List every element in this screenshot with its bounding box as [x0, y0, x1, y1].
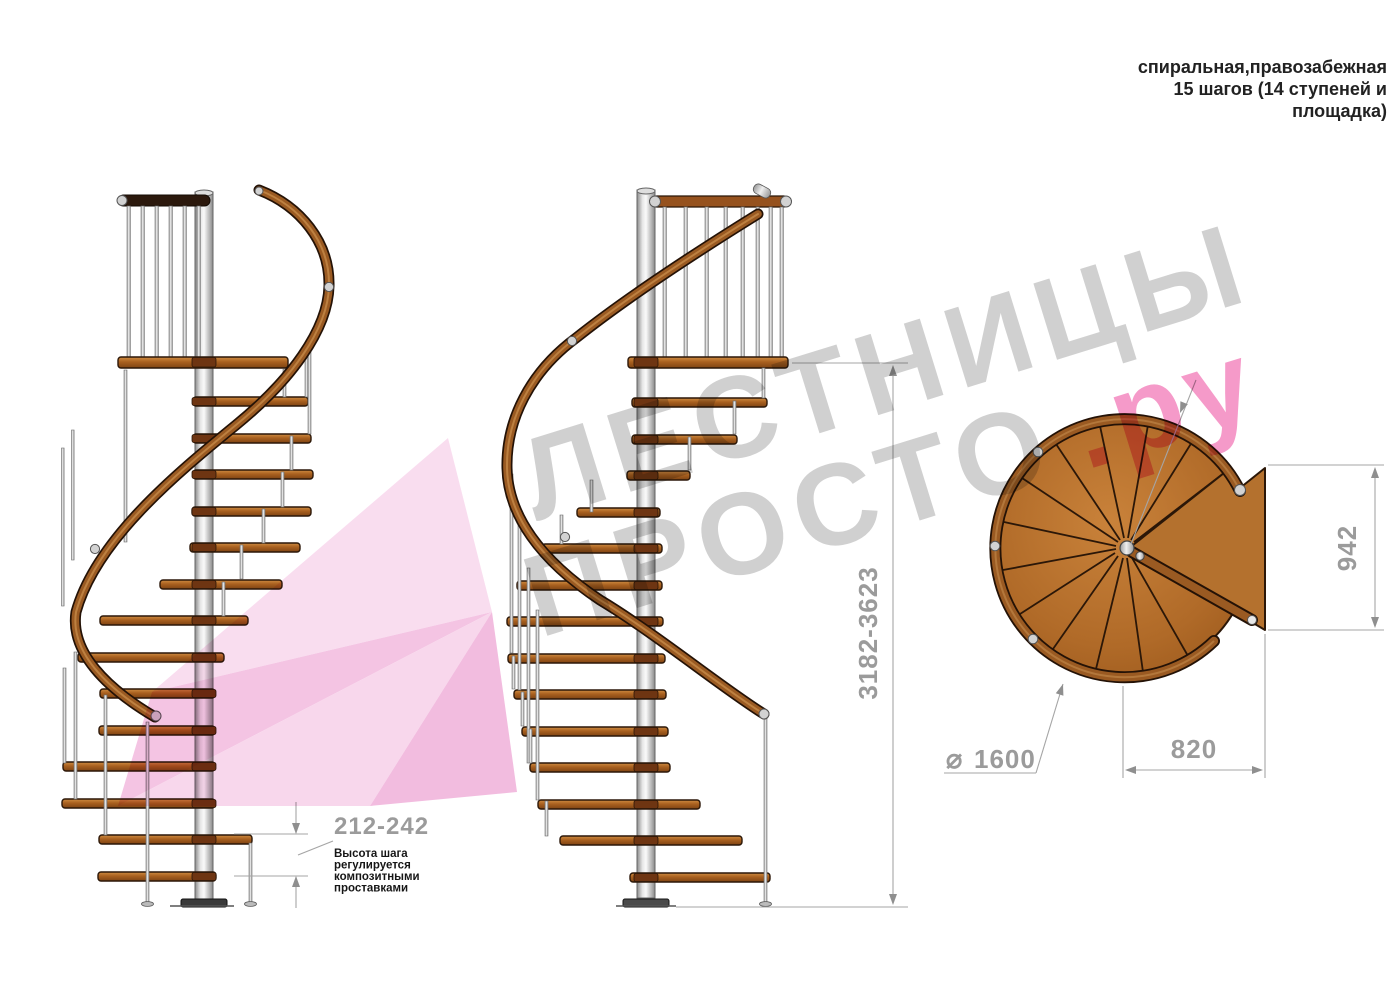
diameter-value: 1600 — [974, 744, 1036, 774]
header-note: спиральная,правозабежная 15 шагов (14 ст… — [1138, 57, 1387, 121]
header-line-1: спиральная,правозабежная — [1138, 57, 1387, 77]
landing-balusters — [127, 206, 200, 358]
diameter-symbol: ⌀ — [946, 744, 963, 774]
step-note-line-3: композитными — [334, 871, 420, 883]
header-line-3: площадка) — [1292, 101, 1387, 121]
step-note-line-2: регулируется — [334, 860, 411, 872]
landing-depth-value: 942 — [1332, 525, 1362, 571]
total-height-value: 3182-3623 — [853, 566, 883, 699]
back-balusters — [62, 430, 75, 606]
step-note-line-1: Высота шага — [334, 848, 408, 860]
staircase-drawing: 3182-3623 212-242 Высота шага регулирует… — [0, 0, 1400, 1000]
dimension-step-height: 212-242 Высота шага регулируется компози… — [234, 802, 429, 908]
landing-width-value: 820 — [1171, 734, 1217, 764]
dimension-landing-depth: 942 — [1268, 465, 1384, 630]
header-line-2: 15 шагов (14 ступеней и — [1173, 79, 1387, 99]
dimension-diameter: ⌀ 1600 — [944, 683, 1067, 774]
drawing-canvas: 3182-3623 212-242 Высота шага регулирует… — [0, 0, 1400, 1000]
step-note-line-4: проставками — [334, 883, 408, 895]
landing-guardrail — [118, 195, 210, 206]
step-height-value: 212-242 — [334, 813, 429, 840]
